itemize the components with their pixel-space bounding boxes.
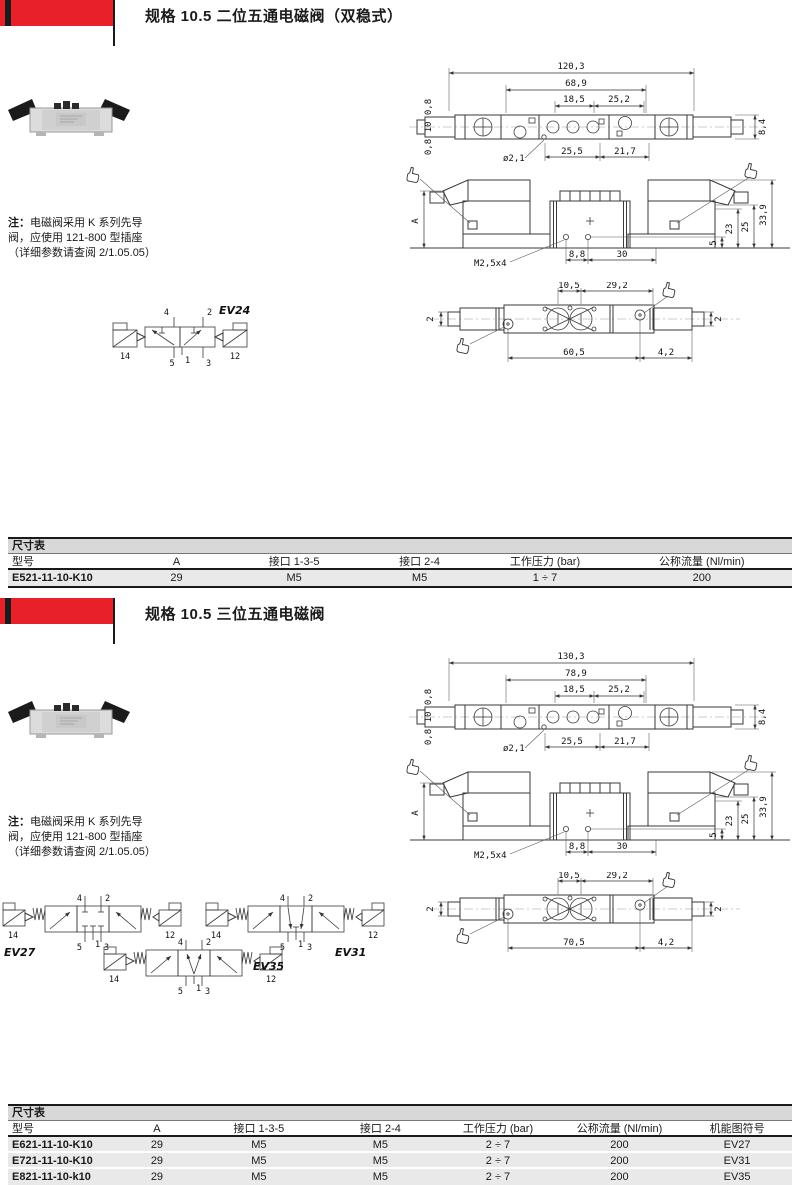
dim-A: A xyxy=(411,810,421,816)
port-5-label: 5 xyxy=(178,987,183,997)
port-14-label: 14 xyxy=(8,931,18,941)
dim-left2: 2 xyxy=(426,906,436,911)
pointer-hand-icon xyxy=(663,873,675,888)
section2-black-notch xyxy=(5,598,11,624)
pointer-hand-icon xyxy=(457,929,469,944)
dim-b2: 4,2 xyxy=(658,938,674,948)
cell: M5 xyxy=(322,1137,440,1151)
dim-thread: M2,5x4 xyxy=(474,851,507,861)
cell-model: E821-11-10-k10 xyxy=(8,1169,118,1185)
dim-a: 18,5 xyxy=(563,685,585,695)
dim-b: 25,2 xyxy=(608,95,630,105)
note-body: 电磁阀采用 K 系列先导阀，应使用 121-800 型插座（详细参数请查阅 2/… xyxy=(8,816,156,858)
front-view-drawing-s1: A 5 23 25 33,9 M2,5x4 8,8 30 xyxy=(398,163,800,290)
dim-body-width: 68,9 xyxy=(565,79,587,89)
cell: 29 xyxy=(118,1153,196,1167)
port-3-label: 3 xyxy=(205,987,210,997)
dimensions: 120,3 68,9 18,5 25,2 0,8 10 0,8 ø2,1 25,… xyxy=(424,62,768,164)
dim-e1: 0,8 xyxy=(424,99,434,115)
dim-b1: 70,5 xyxy=(563,938,585,948)
col-header: 接口 2-4 xyxy=(361,554,479,568)
dim-e1: 0,8 xyxy=(424,689,434,705)
bottom-view-drawing-s1: 10,5 29,2 2 2 60,5 4,2 xyxy=(400,282,800,374)
port-2-label: 2 xyxy=(206,938,211,948)
cell: M5 xyxy=(322,1153,440,1167)
dim-25: 25 xyxy=(741,222,751,233)
section1-title: 规格 10.5 二位五通电磁阀（双稳式） xyxy=(145,5,403,26)
note-prefix: 注： xyxy=(8,217,30,229)
dim-left2: 2 xyxy=(426,316,436,321)
dim-5: 5 xyxy=(709,240,719,245)
front-view-drawing-s2: A 5 23 25 33,9 M2,5x4 8,8 30 xyxy=(398,755,800,882)
port-4-label: 4 xyxy=(178,938,183,948)
section1-black-notch xyxy=(5,0,11,26)
table-header-row: 型号 A 接口 1-3-5 接口 2-4 工作压力 (bar) 公称流量 (Nl… xyxy=(8,1121,792,1137)
dim-23: 23 xyxy=(725,224,735,235)
dim-d: 21,7 xyxy=(614,737,636,747)
dim-thread: M2,5x4 xyxy=(474,259,507,269)
symbol-label: EV27 xyxy=(4,946,36,958)
cell: 200 xyxy=(557,1137,682,1151)
valve-symbol-ev24: 4 2 5 1 3 14 12 EV24 xyxy=(105,302,270,370)
port-12-label: 12 xyxy=(230,352,240,362)
port-1-label: 1 xyxy=(298,940,303,950)
product-photo-valve xyxy=(6,696,136,742)
dim-d: 21,7 xyxy=(614,147,636,157)
dim-b2: 4,2 xyxy=(658,348,674,358)
dim-88: 8,8 xyxy=(569,250,585,260)
col-header: 公称流量 (Nl/min) xyxy=(557,1121,682,1135)
cell: 2 ÷ 7 xyxy=(439,1137,557,1151)
dimension-table-1: 尺寸表 型号 A 接口 1-3-5 接口 2-4 工作压力 (bar) 公称流量… xyxy=(8,537,792,588)
dim-c: 25,5 xyxy=(561,737,583,747)
note-text: 注：电磁阀采用 K 系列先导阀，应使用 121-800 型插座（详细参数请查阅 … xyxy=(8,815,160,860)
dim-total-width: 120,3 xyxy=(557,62,584,72)
table-caption: 尺寸表 xyxy=(8,1106,792,1121)
port-14-label: 14 xyxy=(120,352,130,362)
dim-e3: 0,8 xyxy=(424,139,434,155)
dim-b1: 60,5 xyxy=(563,348,585,358)
dim-right: 8,4 xyxy=(758,709,768,725)
cell: M5 xyxy=(196,1153,321,1167)
section2-red-block xyxy=(0,598,113,624)
table-row: E821-11-10-k10 29 M5 M5 2 ÷ 7 200 EV35 xyxy=(8,1169,792,1185)
col-header: 工作压力 (bar) xyxy=(478,554,611,568)
pointer-hand-icon xyxy=(407,760,419,775)
col-header: A xyxy=(126,554,228,568)
col-header: 型号 xyxy=(8,554,126,568)
col-header: 接口 2-4 xyxy=(322,1121,440,1135)
valve-outline xyxy=(430,283,740,354)
product-photo-valve xyxy=(6,94,136,140)
pointer-hand-icon xyxy=(663,283,675,298)
dim-88: 8,8 xyxy=(569,842,585,852)
port-4-label: 4 xyxy=(164,308,169,318)
dim-339: 33,9 xyxy=(759,204,769,226)
pointer-hand-icon xyxy=(745,756,757,771)
col-header: 接口 1-3-5 xyxy=(228,554,361,568)
dim-total-width: 130,3 xyxy=(557,652,584,662)
dimensions: 130,3 78,9 18,5 25,2 0,8 10 0,8 ø2,1 25,… xyxy=(424,652,768,754)
symbol-body xyxy=(113,317,247,358)
dim-t2: 29,2 xyxy=(606,282,628,291)
dim-t1: 10,5 xyxy=(558,282,580,291)
section1-header-rule xyxy=(113,0,115,46)
dim-right: 8,4 xyxy=(758,119,768,135)
port-2-label: 2 xyxy=(105,894,110,904)
cell: EV35 xyxy=(682,1169,792,1185)
cell: M5 xyxy=(361,570,479,586)
port-3-label: 3 xyxy=(206,359,211,369)
cell: EV31 xyxy=(682,1153,792,1167)
cell: 29 xyxy=(118,1137,196,1151)
port-4-label: 4 xyxy=(77,894,82,904)
col-header: 接口 1-3-5 xyxy=(196,1121,321,1135)
dimensions: A 5 23 25 33,9 M2,5x4 8,8 30 xyxy=(411,180,776,269)
symbol-label: EV35 xyxy=(253,960,283,973)
dim-339: 33,9 xyxy=(759,796,769,818)
port-3-label: 3 xyxy=(307,943,312,953)
cell: M5 xyxy=(196,1169,321,1185)
symbol-label: EV24 xyxy=(219,304,250,317)
symbol-label: EV31 xyxy=(335,946,366,958)
dim-e3: 0,8 xyxy=(424,729,434,745)
section2-title: 规格 10.5 三位五通电磁阀 xyxy=(145,603,325,624)
cell: 1 ÷ 7 xyxy=(478,570,611,586)
dim-30: 30 xyxy=(617,250,628,260)
dim-hole: ø2,1 xyxy=(503,744,525,754)
cell: 200 xyxy=(612,570,792,586)
dim-right2: 2 xyxy=(714,316,724,321)
table-header-row: 型号 A 接口 1-3-5 接口 2-4 工作压力 (bar) 公称流量 (Nl… xyxy=(8,554,792,570)
catalog-page: 规格 10.5 二位五通电磁阀（双稳式） 注：电磁阀采用 K 系列先导阀，应使用… xyxy=(0,0,800,1185)
dim-23: 23 xyxy=(725,816,735,827)
note-text: 注：电磁阀采用 K 系列先导阀，应使用 121-800 型插座（详细参数请查阅 … xyxy=(8,216,160,261)
dim-right2: 2 xyxy=(714,906,724,911)
pointer-hand-icon xyxy=(407,168,419,183)
table-caption: 尺寸表 xyxy=(8,539,792,554)
top-view-drawing-s2: 130,3 78,9 18,5 25,2 0,8 10 0,8 ø2,1 25,… xyxy=(403,647,800,759)
dimensions: A 5 23 25 33,9 M2,5x4 8,8 30 xyxy=(411,772,776,861)
port-5-label: 5 xyxy=(77,943,82,953)
valve-outline xyxy=(409,115,765,139)
table-row: E621-11-10-K10 29 M5 M5 2 ÷ 7 200 EV27 xyxy=(8,1137,792,1153)
dimension-table-2: 尺寸表 型号 A 接口 1-3-5 接口 2-4 工作压力 (bar) 公称流量… xyxy=(8,1104,792,1185)
cell: M5 xyxy=(322,1169,440,1185)
cell: EV27 xyxy=(682,1137,792,1151)
port-1-label: 1 xyxy=(95,940,100,950)
valve-symbol-ev35: 4 2 5 1 3 14 12 EV35 xyxy=(103,930,283,1002)
dim-b: 25,2 xyxy=(608,685,630,695)
cell-model: E521-11-10-K10 xyxy=(8,570,126,586)
dim-30: 30 xyxy=(617,842,628,852)
port-2-label: 2 xyxy=(207,308,212,318)
col-header: 型号 xyxy=(8,1121,118,1135)
cell-model: E721-11-10-K10 xyxy=(8,1153,118,1167)
dim-e2: 10 xyxy=(424,712,434,723)
bottom-view-drawing-s2: 10,5 29,2 2 2 70,5 4,2 xyxy=(400,872,800,964)
port-2-label: 2 xyxy=(308,894,313,904)
cell: 200 xyxy=(557,1169,682,1185)
dim-a: 18,5 xyxy=(563,95,585,105)
port-12-label: 12 xyxy=(266,975,276,985)
top-view-drawing-s1: 120,3 68,9 18,5 25,2 0,8 10 0,8 ø2,1 25,… xyxy=(403,57,800,169)
port-1-label: 1 xyxy=(196,984,201,994)
valve-outline xyxy=(430,873,740,944)
col-header: A xyxy=(118,1121,196,1135)
pointer-hand-icon xyxy=(457,339,469,354)
section1-red-block xyxy=(0,0,113,26)
dim-t2: 29,2 xyxy=(606,872,628,881)
cell: M5 xyxy=(228,570,361,586)
port-1-label: 1 xyxy=(185,356,190,366)
note-body: 电磁阀采用 K 系列先导阀，应使用 121-800 型插座（详细参数请查阅 2/… xyxy=(8,217,156,259)
dim-e2: 10 xyxy=(424,122,434,133)
cell: 2 ÷ 7 xyxy=(439,1153,557,1167)
dim-body-width: 78,9 xyxy=(565,669,587,679)
port-5-label: 5 xyxy=(169,359,174,369)
col-header: 公称流量 (Nl/min) xyxy=(612,554,792,568)
cell: 200 xyxy=(557,1153,682,1167)
section2-header-rule xyxy=(113,598,115,644)
port-14-label: 14 xyxy=(109,975,119,985)
port-4-label: 4 xyxy=(280,894,285,904)
dim-25: 25 xyxy=(741,814,751,825)
cell: 2 ÷ 7 xyxy=(439,1169,557,1185)
dim-5: 5 xyxy=(709,832,719,837)
valve-outline xyxy=(409,705,765,729)
port-12-label: 12 xyxy=(368,931,378,941)
table-row: E521-11-10-K10 29 M5 M5 1 ÷ 7 200 xyxy=(8,570,792,586)
col-header: 机能图符号 xyxy=(682,1121,792,1135)
cell-model: E621-11-10-K10 xyxy=(8,1137,118,1151)
dim-A: A xyxy=(411,218,421,224)
cell: 29 xyxy=(126,570,228,586)
note-prefix: 注： xyxy=(8,816,30,828)
table-row: E721-11-10-K10 29 M5 M5 2 ÷ 7 200 EV31 xyxy=(8,1153,792,1169)
col-header: 工作压力 (bar) xyxy=(439,1121,557,1135)
cell: M5 xyxy=(196,1137,321,1151)
cell: 29 xyxy=(118,1169,196,1185)
dim-t1: 10,5 xyxy=(558,872,580,881)
dim-c: 25,5 xyxy=(561,147,583,157)
pointer-hand-icon xyxy=(745,164,757,179)
